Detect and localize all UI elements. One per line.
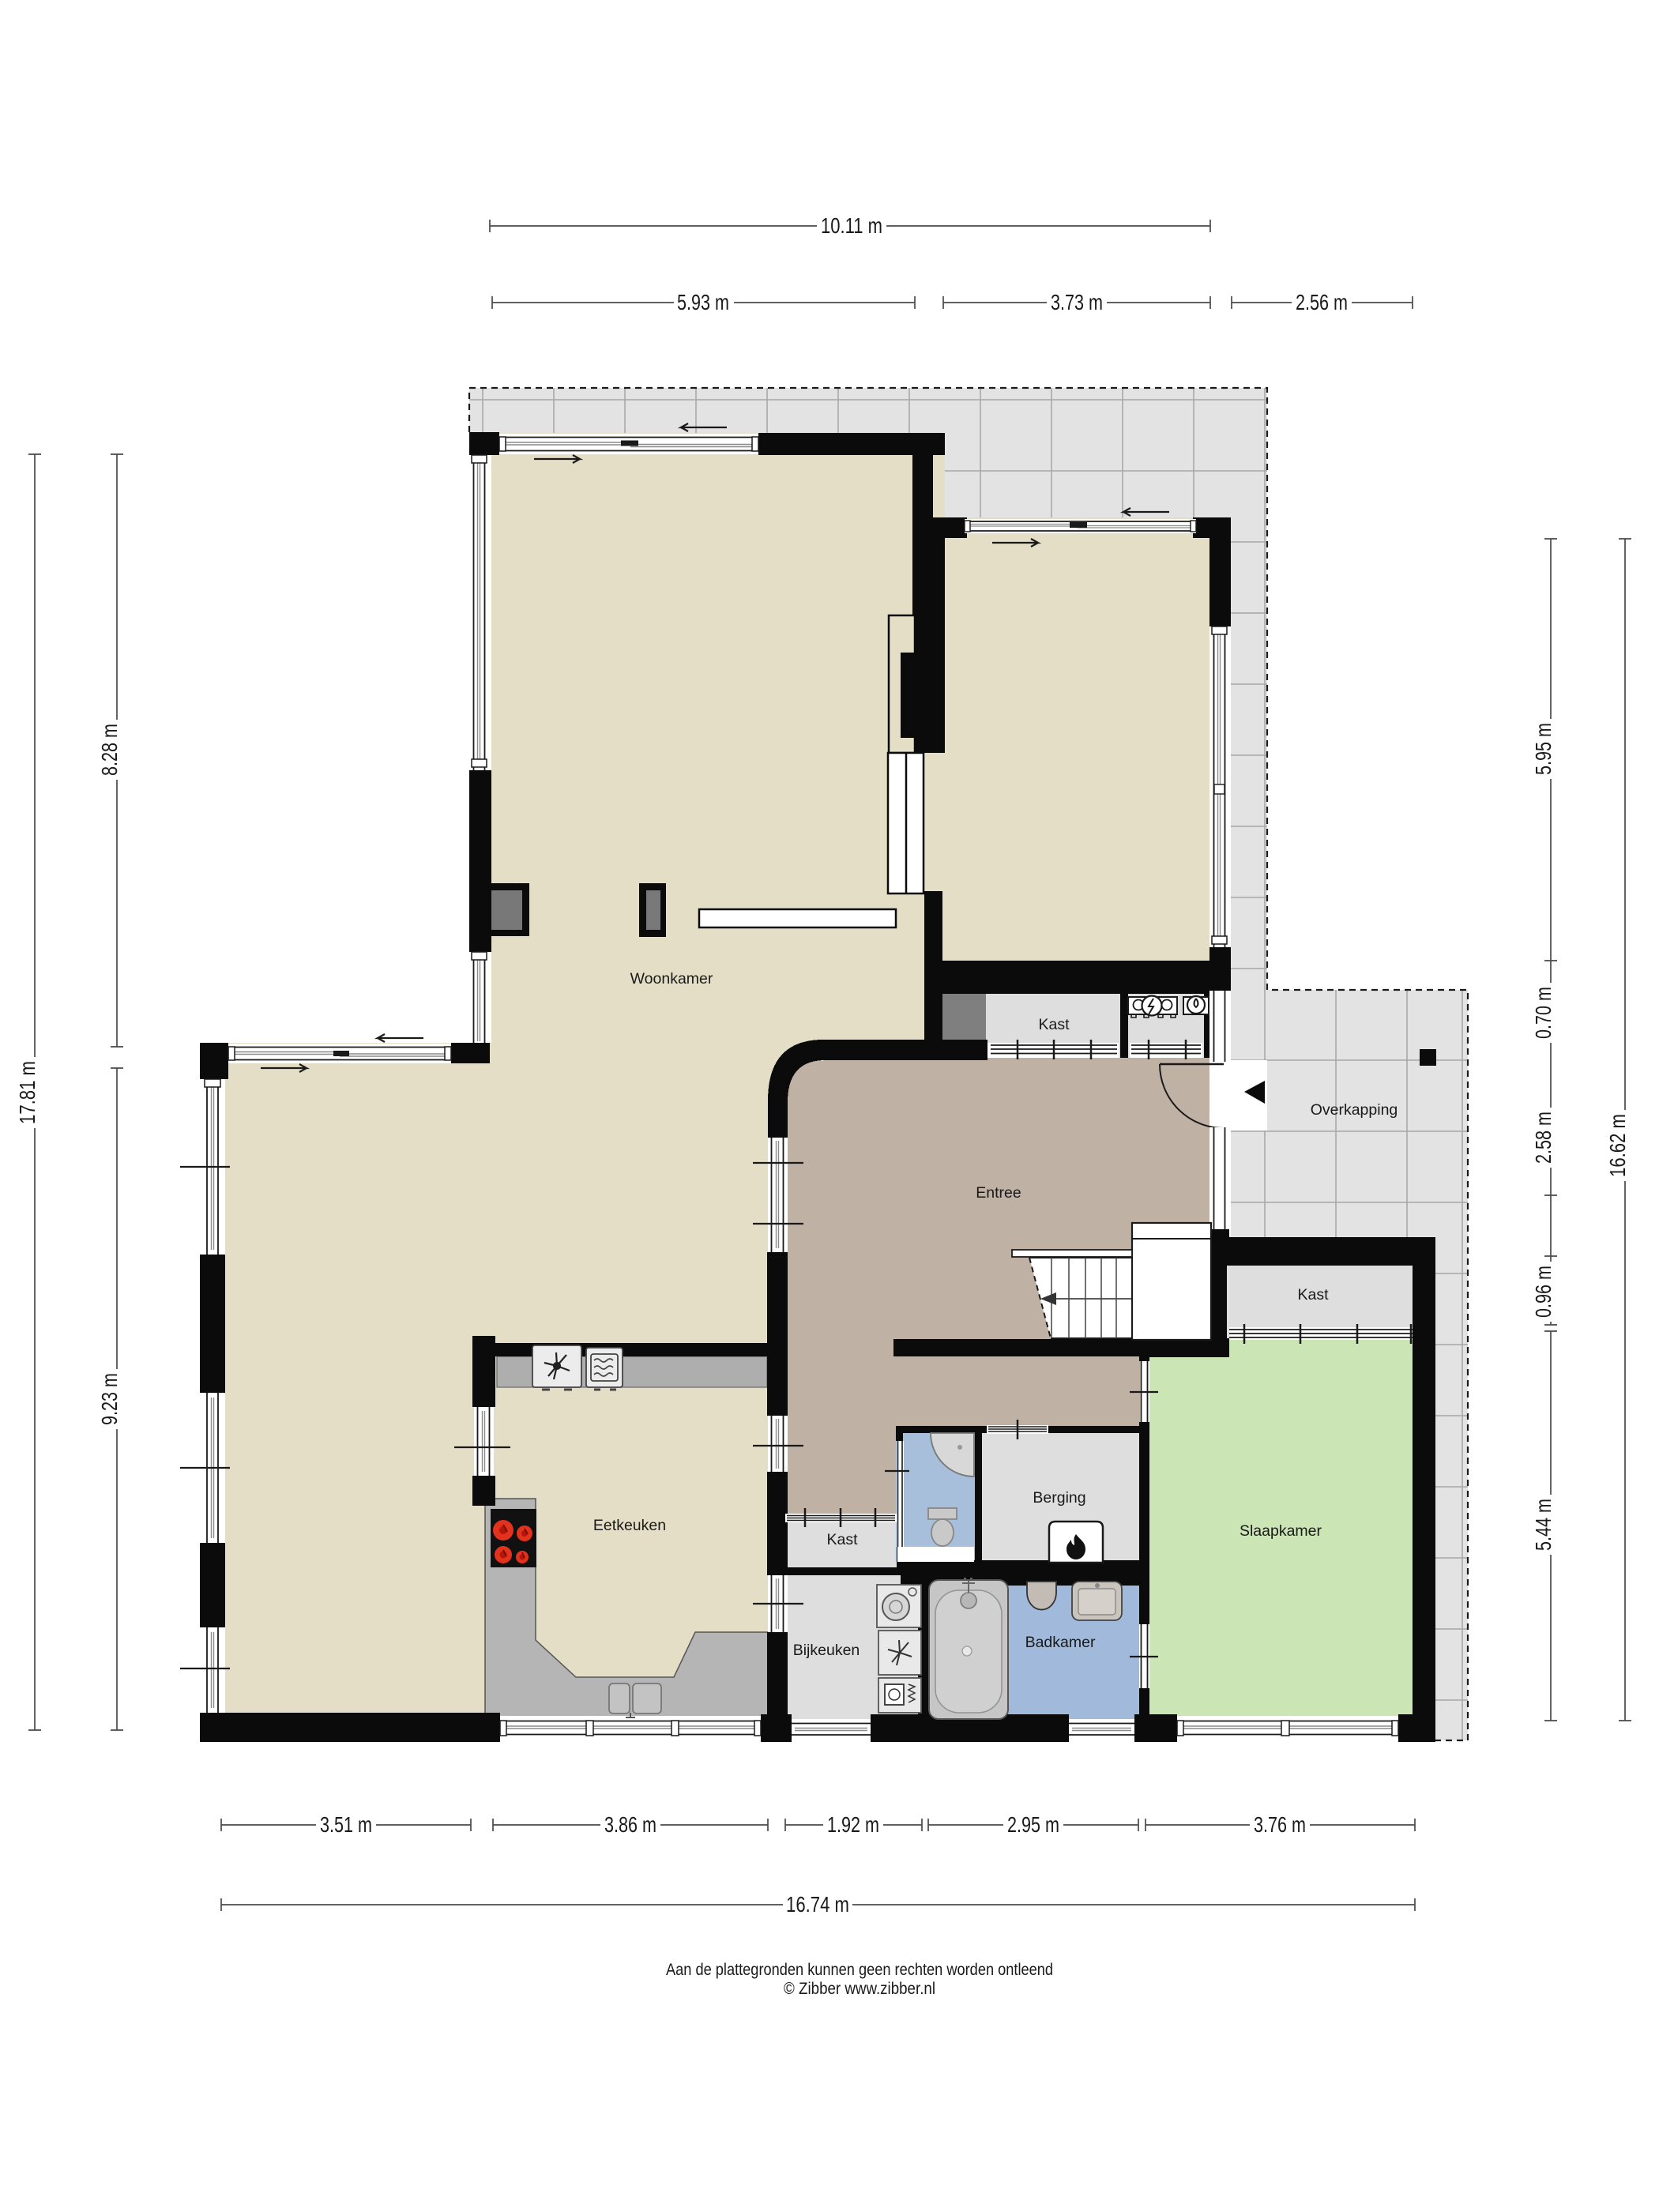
svg-text:2.58 m: 2.58 m	[1531, 1112, 1556, 1164]
svg-text:Kast: Kast	[826, 1531, 858, 1548]
svg-text:8.28 m: 8.28 m	[97, 724, 122, 776]
svg-text:3.76 m: 3.76 m	[1254, 1812, 1306, 1837]
svg-text:10.11 m: 10.11 m	[821, 213, 882, 238]
svg-text:16.62 m: 16.62 m	[1605, 1114, 1630, 1177]
svg-text:Bijkeuken: Bijkeuken	[793, 1642, 860, 1659]
svg-text:Badkamer: Badkamer	[1025, 1634, 1096, 1651]
svg-text:Eetkeuken: Eetkeuken	[593, 1517, 666, 1534]
svg-text:3.73 m: 3.73 m	[1051, 290, 1103, 314]
svg-text:Woonkamer: Woonkamer	[630, 970, 713, 987]
svg-text:9.23 m: 9.23 m	[97, 1373, 122, 1425]
svg-text:0.70 m: 0.70 m	[1531, 987, 1556, 1039]
svg-text:0.96 m: 0.96 m	[1531, 1266, 1556, 1318]
svg-text:Overkapping: Overkapping	[1311, 1101, 1398, 1119]
svg-text:17.81 m: 17.81 m	[15, 1061, 39, 1124]
svg-text:16.74 m: 16.74 m	[786, 1892, 849, 1917]
svg-text:2.95 m: 2.95 m	[1007, 1812, 1059, 1837]
svg-text:2.56 m: 2.56 m	[1296, 290, 1348, 314]
svg-text:Entree: Entree	[976, 1184, 1021, 1202]
svg-text:5.44 m: 5.44 m	[1531, 1499, 1556, 1551]
svg-text:5.95 m: 5.95 m	[1531, 723, 1556, 775]
svg-text:3.86 m: 3.86 m	[604, 1812, 656, 1837]
svg-text:Berging: Berging	[1033, 1489, 1085, 1507]
svg-text:Slaapkamer: Slaapkamer	[1240, 1522, 1322, 1540]
svg-text:Aan de plattegronden kunnen ge: Aan de plattegronden kunnen geen rechten…	[666, 1961, 1053, 1979]
svg-text:5.93 m: 5.93 m	[677, 290, 729, 314]
svg-text:3.51 m: 3.51 m	[320, 1812, 372, 1837]
svg-text:1.92 m: 1.92 m	[827, 1812, 879, 1837]
svg-text:Kast: Kast	[1038, 1016, 1070, 1033]
svg-text:Kast: Kast	[1297, 1286, 1329, 1303]
svg-text:© Zibber www.zibber.nl: © Zibber www.zibber.nl	[784, 1980, 935, 1998]
